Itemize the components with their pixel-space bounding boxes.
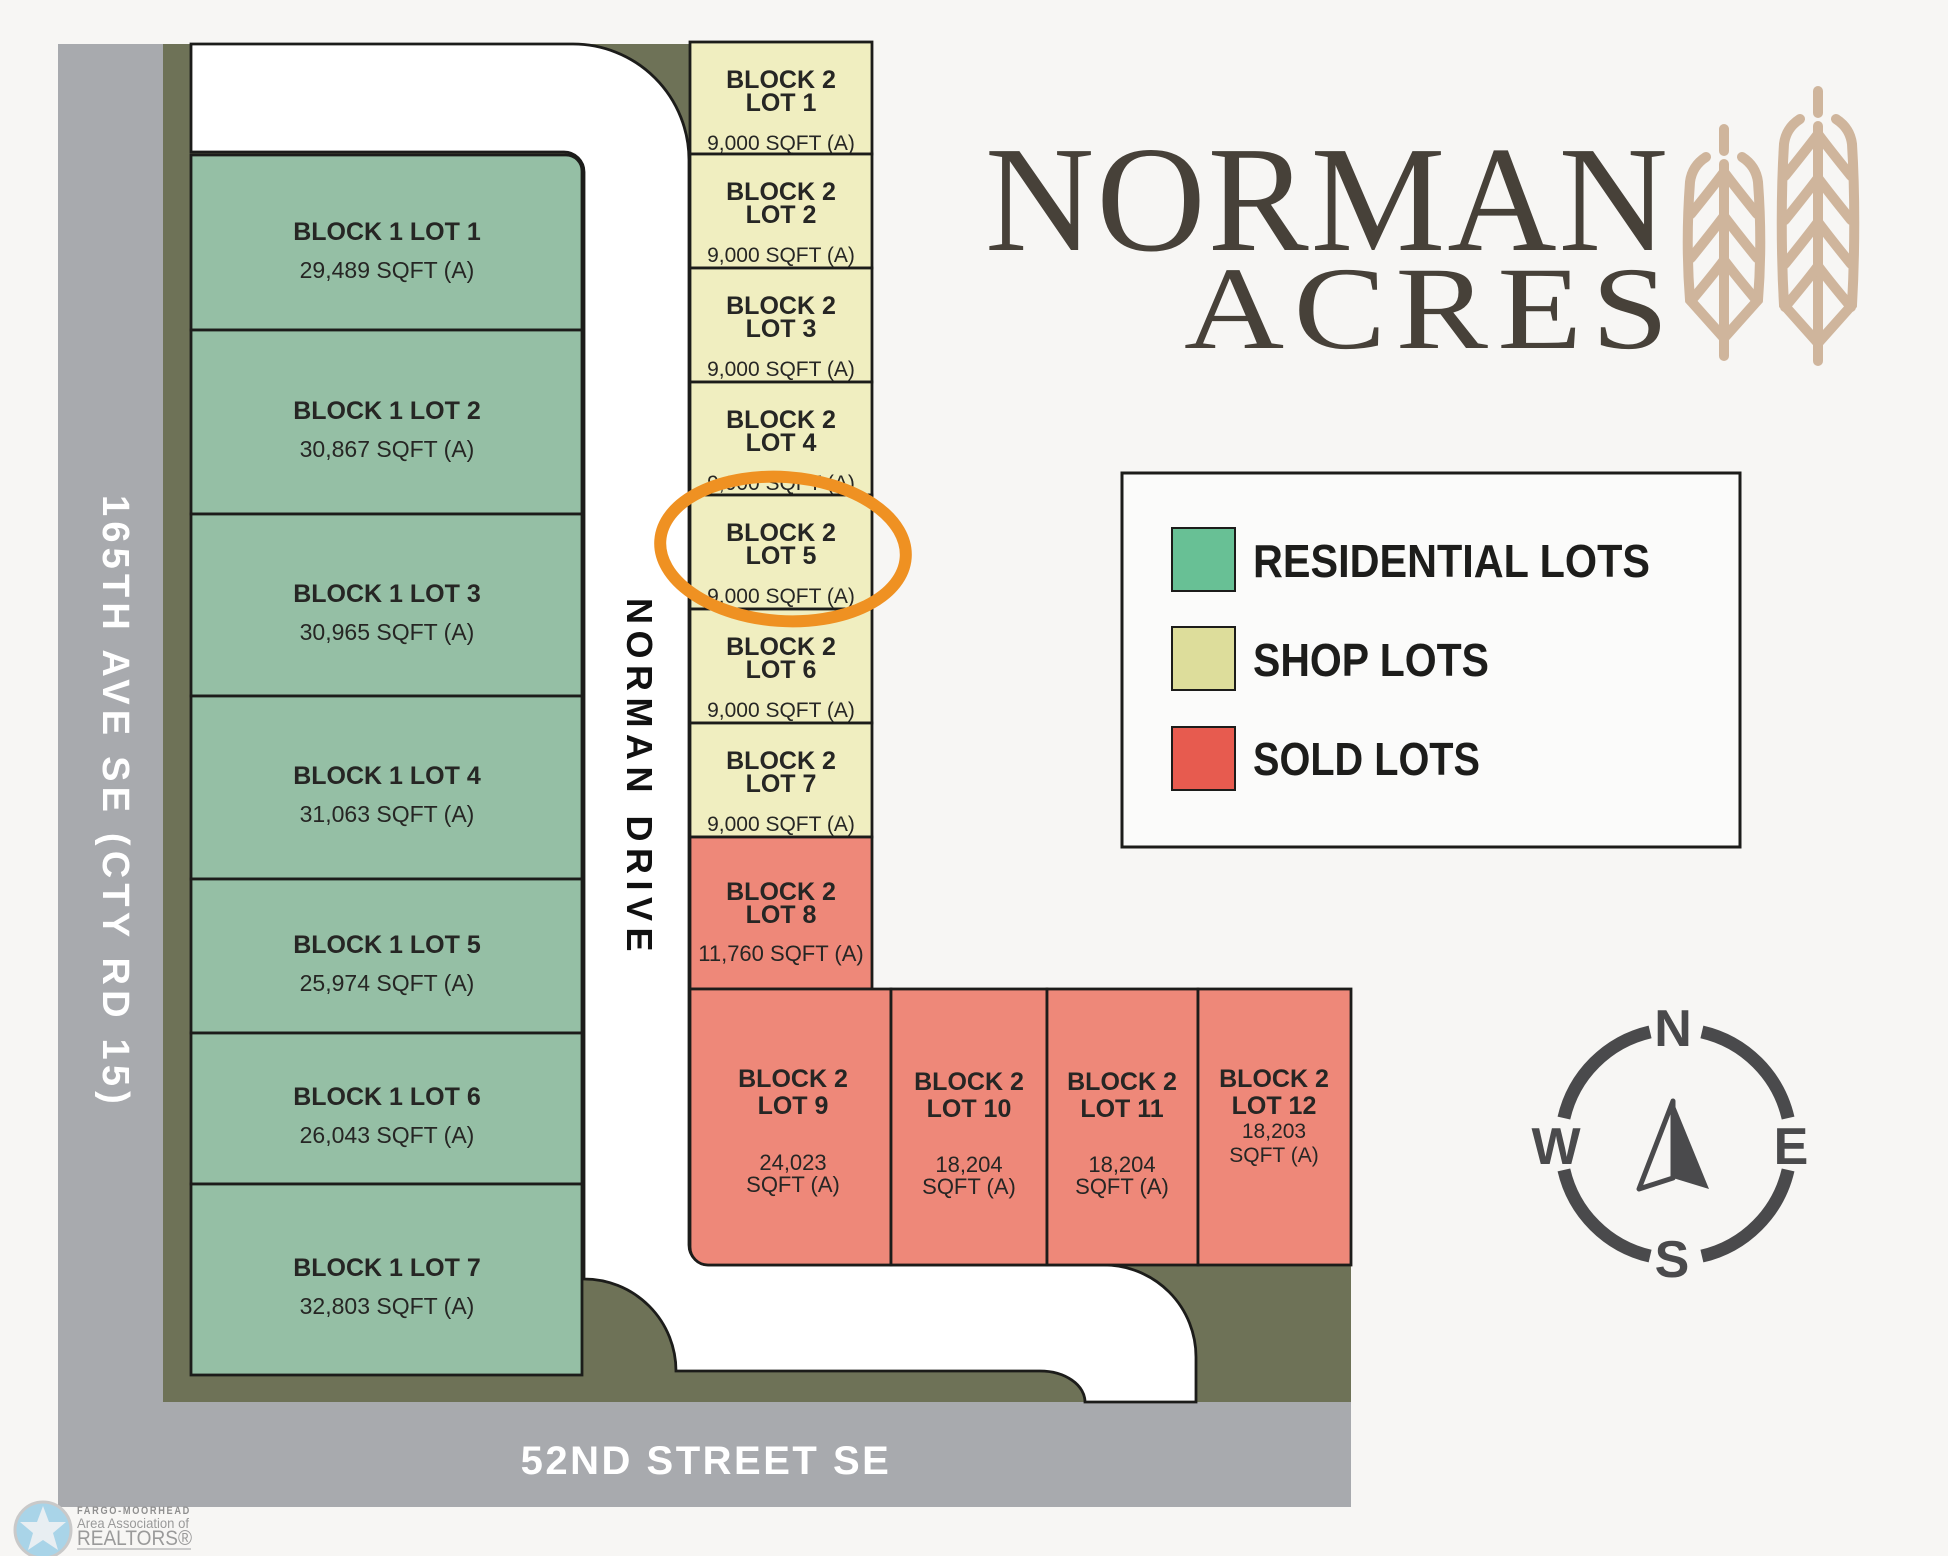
svg-text:REALTORS®: REALTORS®: [77, 1527, 192, 1550]
svg-text:E: E: [1774, 1118, 1809, 1176]
svg-text:LOT 4: LOT 4: [746, 429, 817, 457]
svg-text:165TH AVE SE (CTY RD 15): 165TH AVE SE (CTY RD 15): [94, 495, 136, 1109]
svg-text:9,000 SQFT (A): 9,000 SQFT (A): [707, 699, 855, 722]
svg-text:30,965 SQFT (A): 30,965 SQFT (A): [300, 619, 475, 645]
svg-text:S: S: [1655, 1231, 1690, 1289]
svg-text:LOT 11: LOT 11: [1080, 1095, 1163, 1123]
svg-text:32,803 SQFT (A): 32,803 SQFT (A): [300, 1293, 475, 1319]
svg-text:SHOP LOTS: SHOP LOTS: [1253, 634, 1489, 686]
svg-text:LOT 9: LOT 9: [758, 1092, 829, 1120]
svg-text:LOT 1: LOT 1: [746, 89, 817, 117]
svg-text:18,203: 18,203: [1242, 1120, 1306, 1143]
svg-text:LOT 10: LOT 10: [927, 1095, 1012, 1123]
svg-text:26,043 SQFT (A): 26,043 SQFT (A): [300, 1122, 475, 1148]
svg-text:N: N: [1654, 1000, 1692, 1058]
svg-text:LOT 7: LOT 7: [746, 770, 817, 798]
svg-text:LOT 5: LOT 5: [746, 542, 817, 570]
svg-text:W: W: [1531, 1118, 1581, 1176]
svg-text:11,760 SQFT (A): 11,760 SQFT (A): [698, 941, 863, 966]
svg-text:9,000 SQFT (A): 9,000 SQFT (A): [707, 358, 855, 381]
svg-text:LOT 8: LOT 8: [746, 901, 817, 929]
svg-text:52ND STREET SE: 52ND STREET SE: [521, 1439, 892, 1483]
svg-text:SQFT (A): SQFT (A): [922, 1174, 1016, 1199]
svg-text:31,063 SQFT (A): 31,063 SQFT (A): [300, 801, 475, 827]
svg-text:SOLD LOTS: SOLD LOTS: [1253, 733, 1480, 785]
svg-text:SQFT (A): SQFT (A): [1229, 1144, 1318, 1167]
svg-text:BLOCK 1 LOT 6: BLOCK 1 LOT 6: [293, 1083, 481, 1111]
svg-text:29,489 SQFT (A): 29,489 SQFT (A): [300, 257, 475, 283]
svg-text:25,974 SQFT (A): 25,974 SQFT (A): [300, 970, 475, 996]
svg-text:BLOCK 1 LOT 3: BLOCK 1 LOT 3: [293, 580, 481, 608]
svg-text:BLOCK 2: BLOCK 2: [1067, 1068, 1177, 1096]
svg-text:LOT 12: LOT 12: [1232, 1092, 1317, 1120]
svg-text:BLOCK 2: BLOCK 2: [738, 1065, 848, 1093]
svg-text:RESIDENTIAL LOTS: RESIDENTIAL LOTS: [1253, 535, 1650, 587]
svg-text:BLOCK 1 LOT 4: BLOCK 1 LOT 4: [293, 762, 481, 790]
svg-text:LOT 6: LOT 6: [746, 656, 817, 684]
svg-text:BLOCK 2: BLOCK 2: [914, 1068, 1024, 1096]
svg-text:SQFT (A): SQFT (A): [746, 1172, 840, 1197]
svg-text:SQFT (A): SQFT (A): [1075, 1174, 1169, 1199]
svg-text:BLOCK 2: BLOCK 2: [1219, 1065, 1329, 1093]
svg-text:BLOCK 1 LOT 2: BLOCK 1 LOT 2: [293, 397, 481, 425]
svg-text:LOT 2: LOT 2: [746, 201, 817, 229]
svg-text:NORMAN DRIVE: NORMAN DRIVE: [619, 598, 660, 958]
svg-text:9,000 SQFT (A): 9,000 SQFT (A): [707, 585, 855, 608]
svg-text:BLOCK 1 LOT 5: BLOCK 1 LOT 5: [293, 931, 481, 959]
svg-text:9,000 SQFT (A): 9,000 SQFT (A): [707, 132, 855, 155]
svg-text:9,000 SQFT (A): 9,000 SQFT (A): [707, 813, 855, 836]
svg-text:ACRES: ACRES: [1184, 243, 1678, 374]
svg-text:BLOCK 1 LOT 7: BLOCK 1 LOT 7: [293, 1254, 481, 1282]
svg-text:LOT 3: LOT 3: [746, 315, 817, 343]
svg-text:9,000 SQFT (A): 9,000 SQFT (A): [707, 244, 855, 267]
svg-text:BLOCK 1 LOT 1: BLOCK 1 LOT 1: [293, 218, 481, 246]
svg-text:30,867 SQFT (A): 30,867 SQFT (A): [300, 436, 475, 462]
